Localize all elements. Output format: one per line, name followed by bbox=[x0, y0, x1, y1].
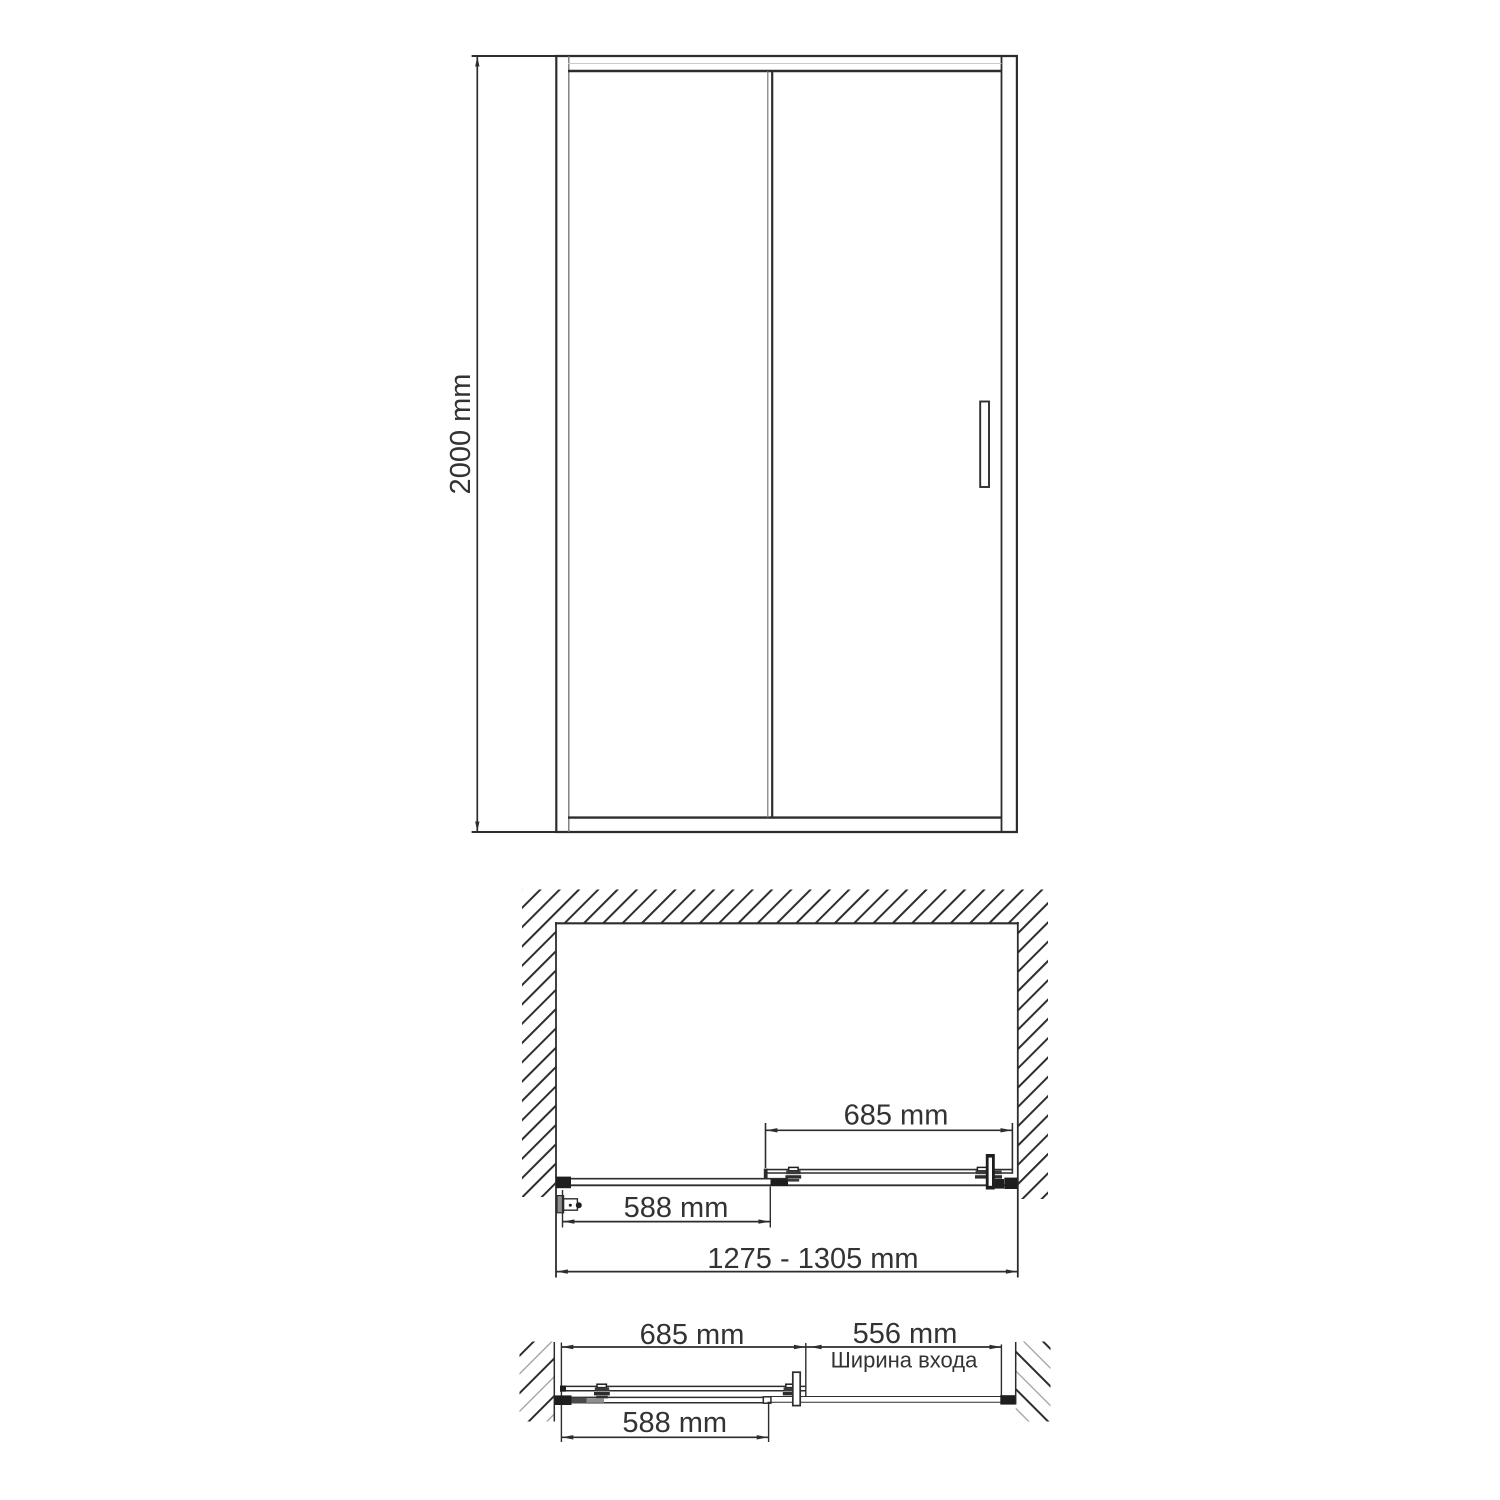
svg-text:2000 mm: 2000 mm bbox=[445, 374, 477, 495]
svg-text:Ширина входа: Ширина входа bbox=[831, 1348, 979, 1373]
svg-text:556 mm: 556 mm bbox=[853, 1318, 958, 1350]
svg-text:1275 - 1305 mm: 1275 - 1305 mm bbox=[707, 1243, 918, 1275]
svg-text:588 mm: 588 mm bbox=[624, 1192, 729, 1224]
svg-text:588 mm: 588 mm bbox=[622, 1407, 727, 1439]
svg-text:685 mm: 685 mm bbox=[844, 1100, 949, 1132]
